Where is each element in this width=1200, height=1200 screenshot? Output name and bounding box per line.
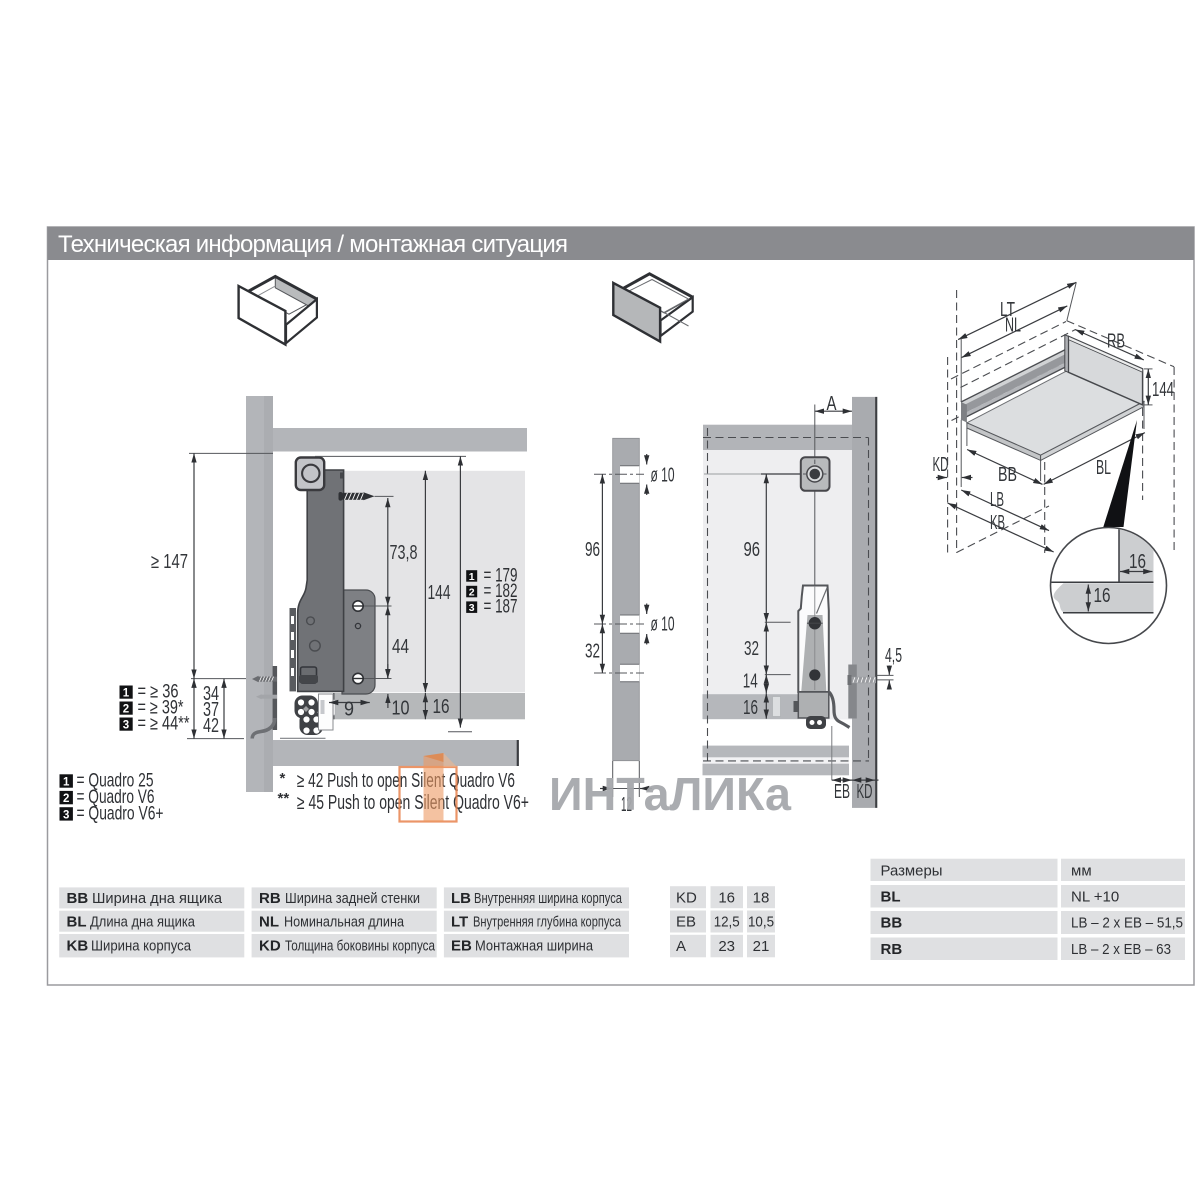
svg-text:14: 14	[743, 671, 758, 693]
svg-text:**: **	[278, 790, 290, 807]
svg-text:73,8: 73,8	[390, 542, 418, 564]
svg-text:LB – 2 x EB – 63: LB – 2 x EB – 63	[1071, 941, 1171, 958]
svg-text:BB: BB	[67, 890, 89, 907]
svg-text:RB: RB	[1107, 331, 1125, 353]
svg-text:16: 16	[743, 697, 758, 719]
svg-text:Толщина боковины корпуса: Толщина боковины корпуса	[285, 938, 436, 955]
svg-text:KD: KD	[933, 454, 949, 476]
svg-text:32: 32	[744, 638, 759, 660]
svg-text:NL: NL	[259, 913, 279, 930]
svg-text:12,5: 12,5	[714, 914, 740, 931]
svg-text:2: 2	[123, 704, 129, 716]
svg-text:= Quadro V6+: = Quadro V6+	[77, 802, 164, 824]
svg-text:Размеры: Размеры	[881, 863, 943, 880]
svg-text:BL: BL	[1096, 457, 1111, 479]
svg-text:21: 21	[753, 938, 770, 955]
svg-text:10,5: 10,5	[748, 914, 774, 931]
svg-text:EB: EB	[451, 938, 472, 955]
svg-text:A: A	[676, 938, 686, 955]
svg-text:EB: EB	[834, 781, 850, 803]
svg-text:32: 32	[585, 641, 600, 663]
svg-text:1: 1	[469, 571, 475, 583]
svg-text:10: 10	[392, 698, 410, 720]
svg-text:44: 44	[392, 636, 409, 658]
svg-text:KD: KD	[857, 781, 873, 803]
svg-text:A: A	[827, 393, 837, 415]
svg-text:Техническая информация / монта: Техническая информация / монтажная ситуа…	[58, 231, 568, 258]
svg-text:Внутренняя ширина корпуса: Внутренняя ширина корпуса	[474, 890, 622, 907]
svg-text:3: 3	[469, 602, 475, 614]
svg-text:3: 3	[123, 720, 129, 732]
svg-text:Внутренняя глубина корпуса: Внутренняя глубина корпуса	[473, 913, 621, 930]
svg-text:144: 144	[428, 582, 451, 604]
svg-text:Ширина дна ящика: Ширина дна ящика	[92, 890, 223, 907]
svg-text:Номинальная длина: Номинальная длина	[284, 913, 405, 930]
svg-text:96: 96	[585, 539, 600, 561]
svg-text:1: 1	[63, 777, 70, 789]
svg-text:23: 23	[718, 938, 735, 955]
svg-text:RB: RB	[259, 890, 281, 907]
svg-text:16: 16	[433, 696, 450, 718]
svg-text:ø 10: ø 10	[651, 614, 675, 636]
svg-text:1: 1	[123, 688, 130, 700]
svg-text:2: 2	[63, 793, 69, 805]
svg-text:96: 96	[744, 539, 761, 561]
svg-text:4,5: 4,5	[885, 645, 902, 667]
svg-text:16: 16	[1129, 551, 1146, 573]
svg-text:LB: LB	[451, 890, 471, 907]
svg-text:Ширина корпуса: Ширина корпуса	[91, 938, 192, 955]
svg-text:KD: KD	[676, 889, 697, 906]
svg-text:LB: LB	[990, 489, 1004, 511]
svg-text:NL: NL	[1005, 315, 1021, 337]
svg-text:Монтажная ширина: Монтажная ширина	[475, 938, 594, 955]
svg-text:Длина дна ящика: Длина дна ящика	[90, 913, 196, 930]
svg-text:NL +10: NL +10	[1071, 889, 1119, 906]
svg-text:KB: KB	[990, 512, 1005, 534]
svg-text:3: 3	[63, 809, 69, 821]
svg-text:*: *	[280, 770, 286, 787]
svg-text:18: 18	[753, 889, 770, 906]
svg-text:мм: мм	[1071, 863, 1092, 880]
svg-text:ИНТаЛИКа: ИНТаЛИКа	[549, 768, 791, 820]
svg-text:KD: KD	[259, 938, 281, 955]
svg-text:16: 16	[1094, 585, 1111, 607]
svg-text:EB: EB	[676, 914, 696, 931]
svg-text:Ширина задней стенки: Ширина задней стенки	[285, 890, 420, 907]
svg-text:BL: BL	[881, 889, 901, 906]
svg-text:2: 2	[469, 587, 475, 599]
svg-text:KB: KB	[67, 938, 89, 955]
svg-text:9: 9	[344, 699, 354, 721]
svg-text:ø 10: ø 10	[651, 465, 675, 487]
svg-text:≥ 45 Push to open Silent Quadr: ≥ 45 Push to open Silent Quadro V6+	[297, 792, 529, 814]
svg-text:RB: RB	[881, 941, 903, 958]
svg-text:= ≥ 44**: = ≥ 44**	[138, 714, 190, 735]
svg-text:144: 144	[1152, 379, 1174, 401]
svg-text:BB: BB	[881, 915, 903, 932]
svg-text:LT: LT	[451, 913, 468, 930]
svg-text:16: 16	[718, 889, 735, 906]
svg-text:BB: BB	[998, 464, 1017, 486]
svg-text:LB – 2 x EB – 51,5: LB – 2 x EB – 51,5	[1071, 915, 1183, 932]
svg-text:BL: BL	[67, 913, 87, 930]
svg-text:≥ 42 Push to open Silent Quadr: ≥ 42 Push to open Silent Quadro V6	[297, 770, 515, 792]
svg-text:≥ 147: ≥ 147	[151, 551, 188, 573]
svg-text:42: 42	[203, 715, 219, 737]
svg-text:= 187: = 187	[484, 596, 518, 618]
